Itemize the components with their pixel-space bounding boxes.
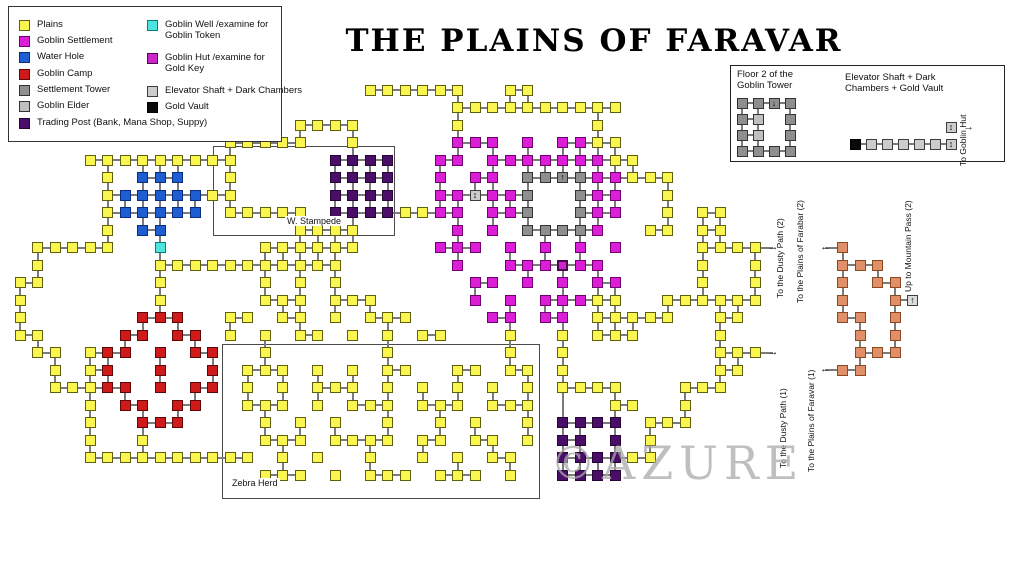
map-room-plains (470, 102, 481, 113)
map-room-plains (242, 400, 253, 411)
map-room-plains (592, 120, 603, 131)
map-room-plains (627, 330, 638, 341)
map-room-mountain-pass (855, 365, 866, 376)
map-room-water-hole (120, 207, 131, 218)
map-room-plains (680, 295, 691, 306)
map-room-plains (505, 470, 516, 481)
map-room-goblin-settlement (505, 312, 516, 323)
map-room-plains (487, 435, 498, 446)
map-room-plains (155, 155, 166, 166)
map-room-goblin-camp (190, 347, 201, 358)
map-room-plains (102, 225, 113, 236)
legend-swatch-plains (19, 20, 30, 31)
map-room-goblin-settlement (505, 207, 516, 218)
legend-label-gold-vault: Gold Vault (165, 101, 209, 112)
map-room-plains (172, 155, 183, 166)
map-room-plains (522, 365, 533, 376)
map-page: The Plains of Faravar PlainsGoblin Settl… (0, 0, 1012, 563)
map-room-plains (505, 330, 516, 341)
map-room-plains (312, 242, 323, 253)
map-room-plains (312, 382, 323, 393)
map-room-plains (295, 137, 306, 148)
map-room-plains (487, 452, 498, 463)
map-room-plains (155, 295, 166, 306)
map-room-plains (505, 365, 516, 376)
map-room-goblin-camp (137, 330, 148, 341)
map-room-goblin-camp (120, 382, 131, 393)
map-room-plains (225, 312, 236, 323)
map-room-plains (207, 260, 218, 271)
map-room-settlement-tower (785, 98, 796, 109)
map-room-plains (67, 242, 78, 253)
map-room-plains (295, 260, 306, 271)
legend-swatch-goblin-well (147, 20, 158, 31)
map-room-plains (452, 102, 463, 113)
map-room-plains (85, 242, 96, 253)
exit-arrow-icon: → (768, 347, 779, 358)
map-room-plains (330, 120, 341, 131)
legend-swatch-water-hole (19, 52, 30, 63)
map-room-goblin-settlement (540, 295, 551, 306)
map-room-plains (225, 260, 236, 271)
map-room-settlement-tower (753, 146, 764, 157)
map-room-plains (435, 470, 446, 481)
legend-label-goblin-settlement: Goblin Settlement (37, 35, 113, 46)
map-room-settlement-tower (575, 225, 586, 236)
map-room-plains (347, 382, 358, 393)
map-room-plains (435, 85, 446, 96)
map-room-trading-post (592, 417, 603, 428)
map-room-plains (400, 207, 411, 218)
map-room-plains (295, 225, 306, 236)
map-room-plains (242, 207, 253, 218)
map-room-plains (295, 242, 306, 253)
map-room-plains (155, 452, 166, 463)
map-room-plains (207, 155, 218, 166)
map-room-water-hole (172, 190, 183, 201)
map-room-plains (155, 260, 166, 271)
map-room-plains (242, 382, 253, 393)
map-room-settlement-tower (522, 225, 533, 236)
elevator-shaft-elevator-icon: ↕ (946, 122, 957, 133)
map-room-plains (417, 452, 428, 463)
map-room-plains (260, 435, 271, 446)
map-room-plains (225, 190, 236, 201)
map-room-plains (680, 382, 691, 393)
tower-inset-label: Floor 2 of theGoblin Tower (737, 69, 793, 91)
map-room-goblin-settlement (610, 242, 621, 253)
map-room-plains (382, 347, 393, 358)
map-room-plains (715, 225, 726, 236)
map-room-plains (347, 365, 358, 376)
map-room-plains (85, 382, 96, 393)
map-room-plains (277, 452, 288, 463)
map-room-goblin-settlement (610, 172, 621, 183)
map-room-plains (417, 330, 428, 341)
map-room-plains (32, 242, 43, 253)
map-room-goblin-settlement (470, 137, 481, 148)
map-room-plains (540, 102, 551, 113)
map-room-plains (470, 417, 481, 428)
map-room-goblin-settlement (592, 225, 603, 236)
map-room-elevator-shaft (866, 139, 877, 150)
map-room-goblin-settlement (592, 190, 603, 201)
map-room-goblin-hut (557, 260, 568, 271)
map-room-mountain-pass (890, 277, 901, 288)
map-room-goblin-settlement (557, 277, 568, 288)
map-room-plains (715, 382, 726, 393)
map-exit-label: To the Dusty Path (2) (775, 218, 785, 298)
map-room-goblin-settlement (452, 155, 463, 166)
map-room-plains (85, 365, 96, 376)
map-room-plains (365, 452, 376, 463)
map-room-goblin-camp (102, 365, 113, 376)
map-room-elevator-shaft (914, 139, 925, 150)
map-room-goblin-settlement (557, 137, 568, 148)
map-room-plains (417, 85, 428, 96)
map-room-gold-vault (850, 139, 861, 150)
map-room-plains (522, 417, 533, 428)
map-room-goblin-settlement (487, 155, 498, 166)
map-room-plains (32, 347, 43, 358)
map-room-plains (505, 400, 516, 411)
map-room-plains (312, 225, 323, 236)
map-room-plains (382, 85, 393, 96)
map-room-plains (347, 137, 358, 148)
legend-swatch-goblin-camp (19, 69, 30, 80)
map-room-goblin-settlement (487, 172, 498, 183)
map-room-goblin-settlement (557, 312, 568, 323)
exit-arrow-icon: ← (820, 364, 831, 375)
map-room-plains (102, 155, 113, 166)
map-room-plains (120, 155, 131, 166)
map-room-goblin-camp (102, 382, 113, 393)
map-room-trading-post (557, 417, 568, 428)
map-room-plains (715, 312, 726, 323)
map-room-settlement-tower (575, 172, 586, 183)
map-room-plains (365, 85, 376, 96)
map-room-plains (347, 295, 358, 306)
map-room-trading-post (610, 417, 621, 428)
map-room-plains (505, 102, 516, 113)
map-room-settlement-tower (522, 190, 533, 201)
map-room-goblin-camp (207, 365, 218, 376)
zone-label: W. Stampede (285, 216, 343, 226)
map-room-plains (610, 400, 621, 411)
map-room-goblin-settlement (610, 277, 621, 288)
map-room-plains (697, 277, 708, 288)
map-room-goblin-camp (155, 312, 166, 323)
map-room-goblin-well (155, 242, 166, 253)
map-room-goblin-settlement (540, 260, 551, 271)
map-room-trading-post (330, 190, 341, 201)
map-room-plains (347, 242, 358, 253)
map-room-plains (557, 365, 568, 376)
map-room-plains (732, 242, 743, 253)
map-room-plains (50, 382, 61, 393)
map-room-plains (102, 242, 113, 253)
watermark: ©AZURE (550, 436, 804, 490)
map-room-elevator-shaft (898, 139, 909, 150)
map-room-plains (610, 295, 621, 306)
map-room-mountain-pass (890, 295, 901, 306)
map-room-plains (312, 452, 323, 463)
map-room-goblin-settlement (592, 172, 603, 183)
map-room-goblin-settlement (610, 207, 621, 218)
map-room-goblin-settlement (505, 260, 516, 271)
map-room-plains (435, 330, 446, 341)
map-room-plains (627, 172, 638, 183)
map-room-plains (435, 435, 446, 446)
map-room-goblin-settlement (435, 242, 446, 253)
map-room-water-hole (155, 225, 166, 236)
map-room-trading-post (382, 172, 393, 183)
map-room-plains (610, 330, 621, 341)
map-room-mountain-pass (890, 330, 901, 341)
map-room-trading-post (330, 155, 341, 166)
map-room-plains (557, 102, 568, 113)
map-room-plains (260, 277, 271, 288)
map-room-plains (85, 435, 96, 446)
map-room-plains (15, 295, 26, 306)
map-room-goblin-camp (207, 347, 218, 358)
map-room-plains (627, 155, 638, 166)
map-room-goblin-settlement (575, 242, 586, 253)
map-room-plains (330, 417, 341, 428)
map-room-settlement-tower (522, 172, 533, 183)
map-room-goblin-settlement (435, 155, 446, 166)
map-room-goblin-settlement (452, 207, 463, 218)
map-room-plains (505, 347, 516, 358)
map-room-goblin-settlement (557, 155, 568, 166)
map-room-plains (715, 242, 726, 253)
map-room-plains (155, 277, 166, 288)
map-room-plains (417, 207, 428, 218)
map-room-goblin-settlement (452, 242, 463, 253)
map-room-goblin-camp (190, 400, 201, 411)
map-room-plains (575, 382, 586, 393)
map-room-mountain-pass (855, 330, 866, 341)
legend-label-settlement-tower: Settlement Tower (37, 84, 110, 95)
map-room-plains (277, 382, 288, 393)
map-room-plains (627, 312, 638, 323)
map-room-plains (330, 260, 341, 271)
map-room-plains (697, 225, 708, 236)
map-room-goblin-camp (137, 417, 148, 428)
map-room-plains (715, 207, 726, 218)
map-room-goblin-settlement (557, 295, 568, 306)
map-room-plains (330, 277, 341, 288)
map-room-plains (697, 295, 708, 306)
map-room-plains (15, 312, 26, 323)
map-room-goblin-settlement (505, 155, 516, 166)
map-room-plains (365, 295, 376, 306)
map-room-plains (330, 242, 341, 253)
map-room-plains (662, 312, 673, 323)
map-room-plains (592, 312, 603, 323)
map-room-goblin-camp (155, 382, 166, 393)
map-room-goblin-settlement (540, 155, 551, 166)
map-room-plains (487, 400, 498, 411)
map-room-plains (610, 382, 621, 393)
map-room-goblin-settlement (575, 137, 586, 148)
legend-label-goblin-well: Goblin Well /examine forGoblin Token (165, 19, 268, 41)
legend-swatch-elevator-shaft (147, 86, 158, 97)
map-room-plains (330, 382, 341, 393)
map-room-goblin-settlement (540, 242, 551, 253)
map-room-plains (400, 470, 411, 481)
map-room-plains (242, 312, 253, 323)
map-room-goblin-camp (155, 347, 166, 358)
map-room-plains (312, 365, 323, 376)
map-room-plains (750, 347, 761, 358)
map-room-water-hole (172, 172, 183, 183)
map-room-plains (50, 347, 61, 358)
map-room-plains (277, 312, 288, 323)
map-room-plains (365, 470, 376, 481)
legend-swatch-goblin-settlement (19, 36, 30, 47)
map-room-water-hole (137, 172, 148, 183)
map-room-plains (715, 330, 726, 341)
map-room-plains (592, 330, 603, 341)
map-room-elevator-shaft (930, 139, 941, 150)
map-room-plains (487, 382, 498, 393)
map-room-plains (697, 382, 708, 393)
map-room-goblin-settlement (487, 137, 498, 148)
map-room-plains (505, 85, 516, 96)
map-room-plains (470, 435, 481, 446)
settlement-tower-down-stairs-icon: ↓ (769, 98, 780, 109)
map-room-settlement-tower (557, 225, 568, 236)
map-room-mountain-pass (855, 260, 866, 271)
map-room-plains (295, 120, 306, 131)
map-room-plains (417, 435, 428, 446)
map-room-plains (277, 435, 288, 446)
legend-label-water-hole: Water Hole (37, 51, 84, 62)
map-room-plains (610, 155, 621, 166)
map-room-plains (697, 242, 708, 253)
map-room-water-hole (155, 190, 166, 201)
map-room-mountain-pass (855, 312, 866, 323)
map-room-goblin-settlement (592, 260, 603, 271)
map-room-plains (312, 330, 323, 341)
map-room-plains (312, 120, 323, 131)
map-room-goblin-elder (753, 114, 764, 125)
map-room-plains (382, 400, 393, 411)
map-room-plains (662, 295, 673, 306)
map-room-plains (662, 172, 673, 183)
map-room-plains (470, 365, 481, 376)
map-room-goblin-settlement (505, 295, 516, 306)
map-room-goblin-settlement (435, 172, 446, 183)
legend-swatch-goblin-elder (19, 101, 30, 112)
map-room-plains (32, 277, 43, 288)
map-room-settlement-tower (785, 146, 796, 157)
map-room-plains (347, 400, 358, 411)
map-room-goblin-settlement (487, 312, 498, 323)
map-room-goblin-settlement (610, 190, 621, 201)
map-room-goblin-camp (190, 382, 201, 393)
map-room-plains (312, 400, 323, 411)
map-room-plains (295, 295, 306, 306)
map-room-settlement-tower (575, 190, 586, 201)
map-room-plains (680, 417, 691, 428)
map-room-plains (365, 400, 376, 411)
map-room-goblin-settlement (522, 155, 533, 166)
map-room-plains (680, 400, 691, 411)
map-room-plains (645, 312, 656, 323)
map-room-trading-post (347, 155, 358, 166)
map-room-goblin-camp (172, 330, 183, 341)
map-room-trading-post (347, 172, 358, 183)
map-room-plains (522, 435, 533, 446)
map-room-settlement-tower (769, 146, 780, 157)
map-room-plains (330, 225, 341, 236)
map-room-plains (592, 137, 603, 148)
map-room-plains (732, 295, 743, 306)
map-room-plains (225, 452, 236, 463)
map-room-goblin-camp (207, 382, 218, 393)
map-room-plains (575, 102, 586, 113)
map-room-water-hole (155, 207, 166, 218)
map-room-settlement-tower (737, 114, 748, 125)
map-room-plains (610, 102, 621, 113)
map-room-goblin-camp (120, 347, 131, 358)
map-room-settlement-tower (540, 172, 551, 183)
legend-label-elevator-shaft: Elevator Shaft + Dark Chambers (165, 85, 302, 96)
legend-swatch-settlement-tower (19, 85, 30, 96)
map-room-plains (137, 155, 148, 166)
legend-label-plains: Plains (37, 19, 63, 30)
map-room-plains (732, 312, 743, 323)
map-room-settlement-tower (737, 130, 748, 141)
map-room-plains (750, 277, 761, 288)
map-room-plains (715, 295, 726, 306)
map-room-settlement-tower (575, 207, 586, 218)
map-room-water-hole (120, 190, 131, 201)
map-room-plains (295, 312, 306, 323)
map-room-plains (435, 417, 446, 428)
map-room-plains (260, 207, 271, 218)
map-room-plains (347, 225, 358, 236)
map-room-plains (715, 365, 726, 376)
map-room-goblin-settlement (592, 207, 603, 218)
map-room-goblin-settlement (487, 225, 498, 236)
map-room-plains (277, 365, 288, 376)
map-room-goblin-settlement (435, 190, 446, 201)
map-room-goblin-elder (753, 130, 764, 141)
map-room-mountain-pass (837, 365, 848, 376)
map-room-plains (85, 347, 96, 358)
map-room-plains (260, 295, 271, 306)
map-room-plains (610, 312, 621, 323)
map-room-goblin-settlement (470, 295, 481, 306)
map-room-plains (260, 347, 271, 358)
map-room-plains (277, 242, 288, 253)
map-room-plains (592, 295, 603, 306)
map-room-plains (452, 382, 463, 393)
map-room-plains (557, 382, 568, 393)
map-room-plains (225, 155, 236, 166)
map-room-plains (645, 417, 656, 428)
map-room-plains (330, 435, 341, 446)
map-exit-label: To the Plains of Farabar (2) (795, 200, 805, 303)
map-room-plains (207, 452, 218, 463)
map-room-goblin-settlement (505, 190, 516, 201)
map-room-goblin-camp (120, 330, 131, 341)
map-room-mountain-pass (837, 260, 848, 271)
map-room-goblin-camp (137, 400, 148, 411)
